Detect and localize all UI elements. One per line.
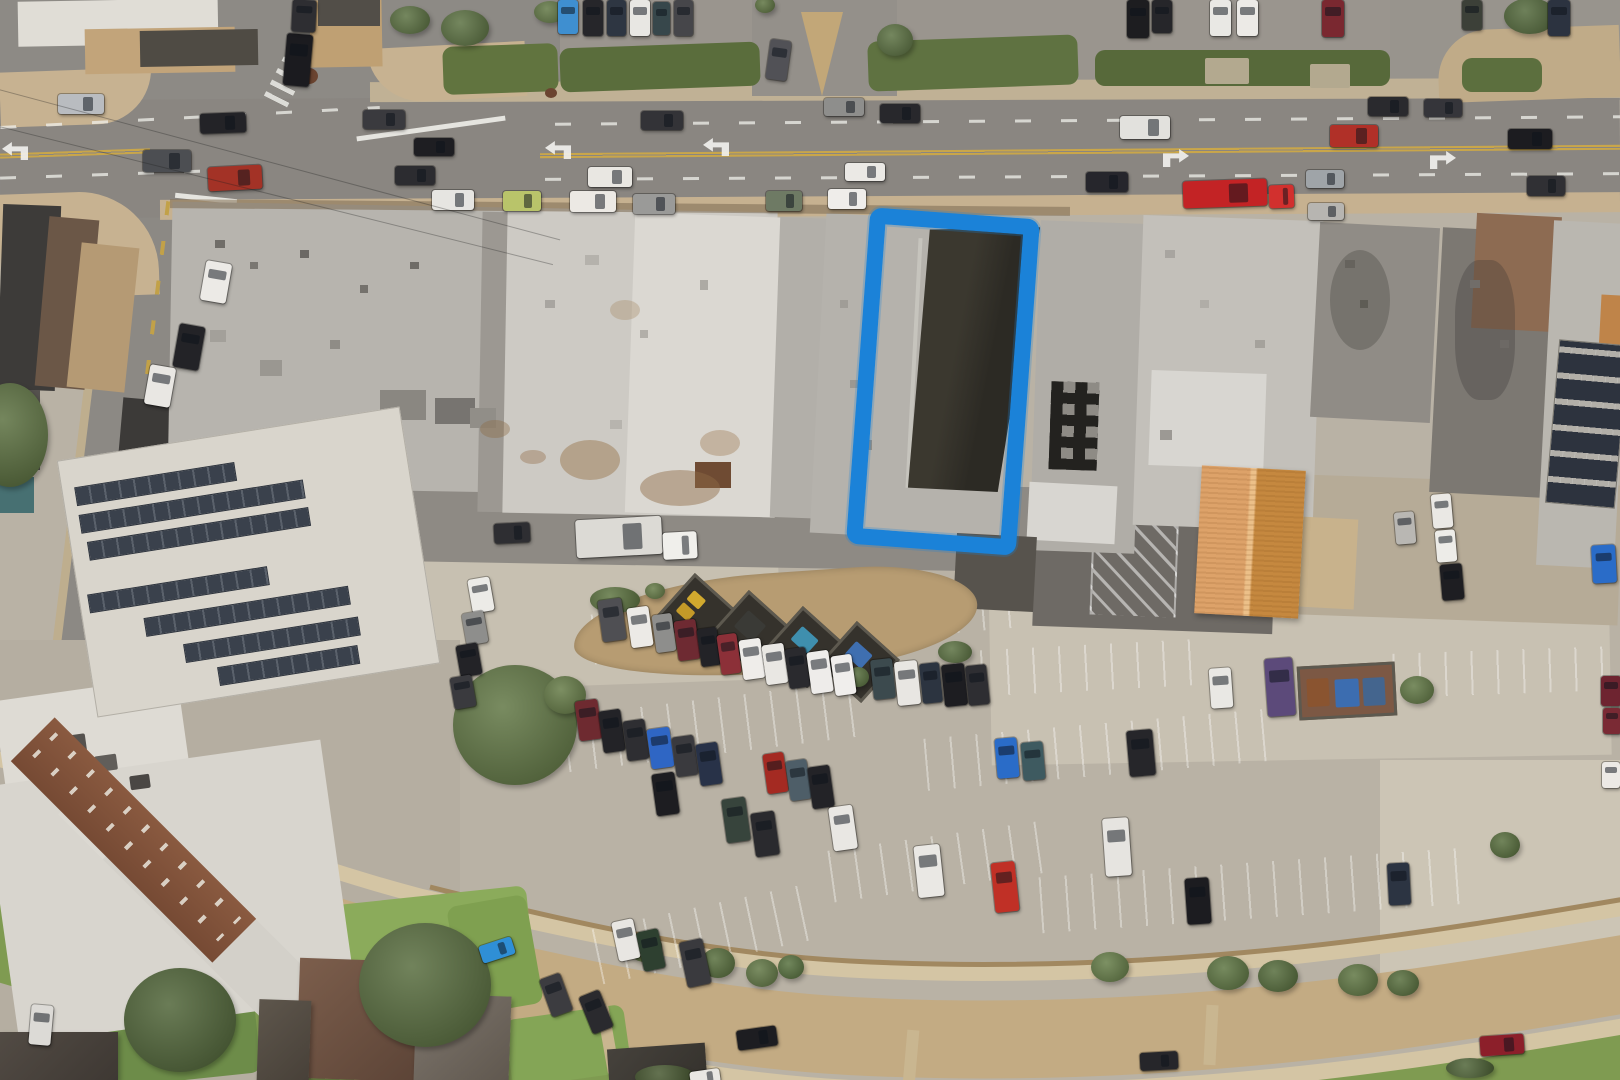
vehicle-glass (603, 717, 620, 728)
vehicle-glass (835, 662, 851, 673)
vehicle (363, 110, 405, 129)
vehicle-glass (1606, 713, 1619, 719)
roof-detail (1455, 260, 1515, 400)
vehicle-glass (656, 780, 673, 791)
vehicle (1479, 1033, 1524, 1056)
vehicle-glass (296, 6, 313, 14)
solar-array-roof (57, 406, 440, 717)
vehicle (662, 531, 697, 560)
vehicle (28, 1004, 53, 1046)
roof-detail (129, 774, 151, 791)
vehicle (575, 516, 663, 558)
vehicle-glass (34, 1012, 50, 1022)
vehicle (570, 191, 616, 212)
vehicle-glass (466, 617, 482, 627)
vehicle-glass (455, 193, 464, 207)
vehicle-glass (1155, 7, 1169, 14)
vehicle (1322, 0, 1344, 37)
roof-detail (1165, 250, 1175, 258)
vehicle-glass (1212, 675, 1228, 685)
roof-detail (1200, 300, 1209, 308)
vehicle (1020, 741, 1045, 781)
vehicle-glass (1240, 7, 1255, 15)
aerial-photo (0, 0, 1620, 1080)
roof-detail (435, 398, 475, 424)
vehicle-glass (1605, 767, 1618, 773)
tree (1400, 676, 1434, 704)
roof-detail (545, 300, 555, 308)
vehicle-glass (849, 192, 857, 206)
roof-detail (560, 440, 620, 480)
vehicle-glass (1434, 500, 1449, 509)
vehicle (414, 138, 454, 156)
vehicle (919, 662, 943, 704)
tree (1387, 970, 1419, 996)
vehicle-glass (678, 627, 694, 638)
vehicle-glass (1438, 536, 1453, 544)
vehicle (766, 191, 802, 211)
vehicle-glass (1397, 518, 1412, 526)
roof-detail (1255, 340, 1265, 348)
vehicle (880, 104, 920, 123)
vehicle (1127, 0, 1149, 38)
vehicle (894, 660, 921, 706)
building-roof (1296, 517, 1359, 610)
roof-detail (260, 360, 282, 376)
vehicle (1602, 762, 1620, 788)
vehicle (558, 0, 578, 34)
vehicle-glass (1445, 102, 1453, 115)
tree (1338, 964, 1378, 996)
vehicle (1183, 179, 1268, 209)
vehicle-glass (790, 767, 806, 778)
orange-gable-roof (1194, 465, 1306, 618)
vehicle (207, 165, 262, 192)
vehicle (1435, 529, 1458, 563)
vehicle (1394, 511, 1417, 545)
vehicle-glass (758, 1030, 769, 1045)
vehicle-glass (616, 927, 633, 939)
roof-detail (545, 88, 557, 98)
vehicle-glass (1595, 552, 1612, 561)
vehicle-glass (1161, 1054, 1170, 1067)
vehicle-glass (874, 666, 890, 676)
vehicle-glass (610, 7, 623, 15)
tree (746, 959, 778, 987)
roof-detail (520, 450, 546, 464)
vehicle (641, 111, 683, 130)
vehicle (1126, 729, 1156, 777)
vehicle (1439, 563, 1464, 601)
building-roof (1027, 482, 1118, 545)
vehicle-glass (918, 855, 937, 868)
vehicle (1424, 99, 1462, 117)
vehicle-glass (1282, 188, 1288, 204)
vehicle-glass (677, 7, 690, 15)
vehicle-glass (454, 681, 470, 691)
vehicle-glass (656, 197, 665, 211)
tree (1446, 1058, 1494, 1078)
vehicle-glass (902, 107, 911, 120)
roof-detail (215, 240, 225, 248)
solar-array-roof (1545, 339, 1620, 508)
vehicle (1086, 172, 1128, 192)
tree (441, 10, 489, 46)
vehicle (1210, 0, 1231, 36)
roof-detail (410, 262, 419, 269)
vehicle-glass (1327, 173, 1335, 186)
vehicle-glass (631, 614, 647, 625)
tree (359, 923, 491, 1047)
tree (390, 6, 430, 34)
vehicle-glass (1024, 749, 1040, 759)
vehicle (824, 98, 864, 116)
vehicle-glass (755, 820, 773, 832)
vehicle-glass (1604, 682, 1618, 689)
vehicle-glass (995, 871, 1013, 884)
vehicle (1387, 862, 1411, 905)
vehicle-glass (700, 635, 715, 645)
vehicle-glass (789, 655, 805, 666)
vehicle-glass (545, 981, 562, 995)
vehicle (1508, 129, 1552, 149)
vehicle-glass (497, 941, 508, 955)
roof-detail (585, 255, 599, 265)
vehicle (845, 163, 885, 181)
vehicle-glass (208, 269, 227, 281)
building-roof (140, 29, 259, 67)
vehicle (503, 191, 541, 211)
vehicle-glass (1269, 669, 1289, 683)
vehicle-glass (664, 114, 673, 127)
vehicle-glass (602, 606, 620, 617)
vehicle-glass (417, 169, 426, 182)
vehicle-glass (524, 194, 532, 208)
vehicle-glass (513, 526, 522, 540)
roof-detail (640, 470, 720, 506)
dumpster (734, 610, 767, 642)
vehicle (674, 0, 693, 36)
vehicle-glass (1130, 8, 1145, 16)
vehicle (1269, 185, 1295, 209)
vehicle-glass (998, 745, 1014, 755)
vehicle (494, 522, 531, 544)
vehicle-glass (289, 44, 308, 57)
vehicle-glass (1109, 175, 1118, 189)
tree (1207, 956, 1249, 990)
vehicle (291, 0, 317, 33)
vehicle-glass (945, 672, 962, 683)
vehicle-glass (867, 166, 876, 179)
property-highlight-outline (846, 207, 1040, 556)
building-roof (1148, 370, 1266, 469)
vehicle-glass (772, 47, 788, 58)
vehicle-glass (595, 194, 605, 209)
vehicle-glass (152, 373, 171, 385)
vehicle-glass (181, 332, 201, 345)
vehicle (1152, 0, 1172, 33)
vehicle-glass (656, 9, 668, 16)
roof-detail (700, 430, 740, 456)
vehicle-glass (633, 7, 647, 15)
vehicle (913, 844, 944, 898)
vehicle-glass (923, 670, 938, 680)
vehicle (941, 663, 968, 707)
roof-detail (610, 300, 640, 320)
vehicle-glass (1443, 571, 1459, 580)
roof-detail (700, 280, 708, 290)
vehicle-glass (706, 1071, 714, 1080)
vehicle (1306, 170, 1344, 188)
vehicle (1601, 676, 1620, 706)
vehicle-glass (436, 141, 445, 154)
vehicle-glass (460, 649, 476, 659)
vehicle-glass (720, 641, 735, 652)
vehicle-glass (1131, 738, 1150, 750)
dumpster (1306, 678, 1329, 707)
vehicle (1330, 125, 1378, 147)
vehicle (1603, 708, 1620, 734)
vehicle-glass (1532, 132, 1542, 146)
roof-detail (1330, 250, 1390, 350)
vehicle (990, 861, 1019, 913)
vehicle-glass (1391, 871, 1407, 881)
vehicle-glass (700, 750, 717, 761)
vehicle (1368, 97, 1408, 116)
vehicle (870, 658, 896, 700)
roof-detail (210, 330, 226, 342)
vehicle (828, 189, 866, 209)
vehicle (1527, 176, 1565, 196)
roof-detail (640, 330, 648, 338)
vehicle-glass (681, 536, 689, 555)
vehicle-glass (225, 116, 236, 130)
vehicle (1120, 116, 1170, 139)
vehicle-glass (584, 998, 602, 1012)
vehicle-glass (726, 806, 744, 818)
vehicle-glass (766, 651, 782, 662)
vehicle (1237, 0, 1258, 36)
vehicle-glass (743, 646, 759, 657)
vehicle-glass (1229, 183, 1248, 203)
vehicle (653, 2, 670, 35)
vehicle (395, 166, 435, 185)
roof-detail (1310, 64, 1350, 88)
vehicle (965, 664, 990, 706)
dumpster-enclosure (1297, 661, 1398, 720)
tree (1258, 960, 1298, 992)
vehicle-glass (169, 153, 180, 168)
vehicle (1431, 493, 1454, 529)
vehicle (994, 737, 1019, 779)
vehicle-glass (623, 522, 643, 550)
vehicle-glass (786, 194, 794, 208)
vehicle (607, 0, 626, 36)
vehicle-glass (767, 760, 783, 771)
vehicle (1209, 667, 1234, 708)
tree (778, 955, 804, 979)
dumpster (1334, 678, 1359, 707)
vehicle (1462, 0, 1482, 30)
vehicle-glass (676, 743, 692, 754)
vehicle-glass (83, 97, 93, 111)
landscaping-patch (1462, 58, 1542, 92)
skylight-checker-roof (1048, 381, 1099, 471)
vehicle-glass (1390, 100, 1399, 113)
vehicle-glass (1504, 1037, 1515, 1052)
dumpster (1362, 677, 1385, 706)
roof-detail (250, 262, 258, 269)
vehicle-glass (612, 170, 622, 184)
vehicle (1591, 544, 1617, 583)
vehicle-glass (1213, 7, 1228, 15)
vehicle (1102, 817, 1132, 877)
vehicle-glass (684, 948, 703, 961)
vehicle-glass (237, 169, 250, 186)
roof-detail (840, 300, 848, 308)
vehicle (200, 112, 247, 134)
tree (645, 583, 665, 599)
house-roof (0, 1032, 118, 1080)
roof-detail (480, 420, 510, 438)
vehicle-glass (1189, 887, 1206, 898)
vehicle-glass (1325, 7, 1340, 15)
vehicle-glass (627, 727, 643, 738)
roof-detail (300, 250, 309, 258)
roof-detail (1160, 430, 1172, 440)
roof-detail (1205, 58, 1249, 84)
vehicle-glass (812, 773, 829, 784)
vehicle (1264, 657, 1296, 717)
vehicle-glass (655, 621, 670, 631)
tree (877, 24, 913, 56)
house-roof (257, 999, 312, 1080)
vehicle (283, 33, 313, 87)
vehicle (633, 194, 675, 214)
vehicle (1308, 203, 1344, 220)
building-roof (318, 0, 380, 26)
vehicle-glass (833, 814, 851, 826)
vehicle-glass (1356, 128, 1367, 143)
vehicle-glass (586, 7, 600, 15)
vehicle-glass (651, 735, 668, 746)
vehicle (588, 167, 632, 187)
roof-detail (330, 340, 340, 349)
tree (1490, 832, 1520, 858)
vehicle (1140, 1051, 1179, 1071)
vehicle-glass (846, 101, 855, 114)
vehicle-glass (1107, 829, 1126, 843)
vehicle-glass (1328, 206, 1336, 218)
vehicle-glass (1148, 119, 1159, 135)
tree (124, 968, 236, 1072)
vehicle (1184, 877, 1211, 925)
vehicle-glass (472, 584, 488, 594)
vehicle-glass (1465, 6, 1479, 13)
vehicle (630, 0, 650, 36)
vehicle-glass (1551, 7, 1566, 15)
vehicle (1548, 0, 1570, 36)
vehicle-glass (811, 658, 828, 669)
vehicle-glass (641, 937, 658, 949)
tree (938, 641, 972, 663)
vehicle-glass (561, 7, 575, 14)
vehicle-glass (969, 672, 985, 682)
landscaping-patch (442, 43, 559, 95)
roof-detail (360, 285, 368, 293)
roof-detail (610, 420, 622, 429)
vehicle-glass (1548, 179, 1556, 193)
tree (1091, 952, 1129, 982)
vehicle-glass (579, 707, 596, 718)
vehicle-glass (386, 113, 395, 126)
vehicle (583, 0, 603, 36)
landscaping-patch (559, 42, 760, 93)
vehicle-glass (898, 669, 915, 680)
